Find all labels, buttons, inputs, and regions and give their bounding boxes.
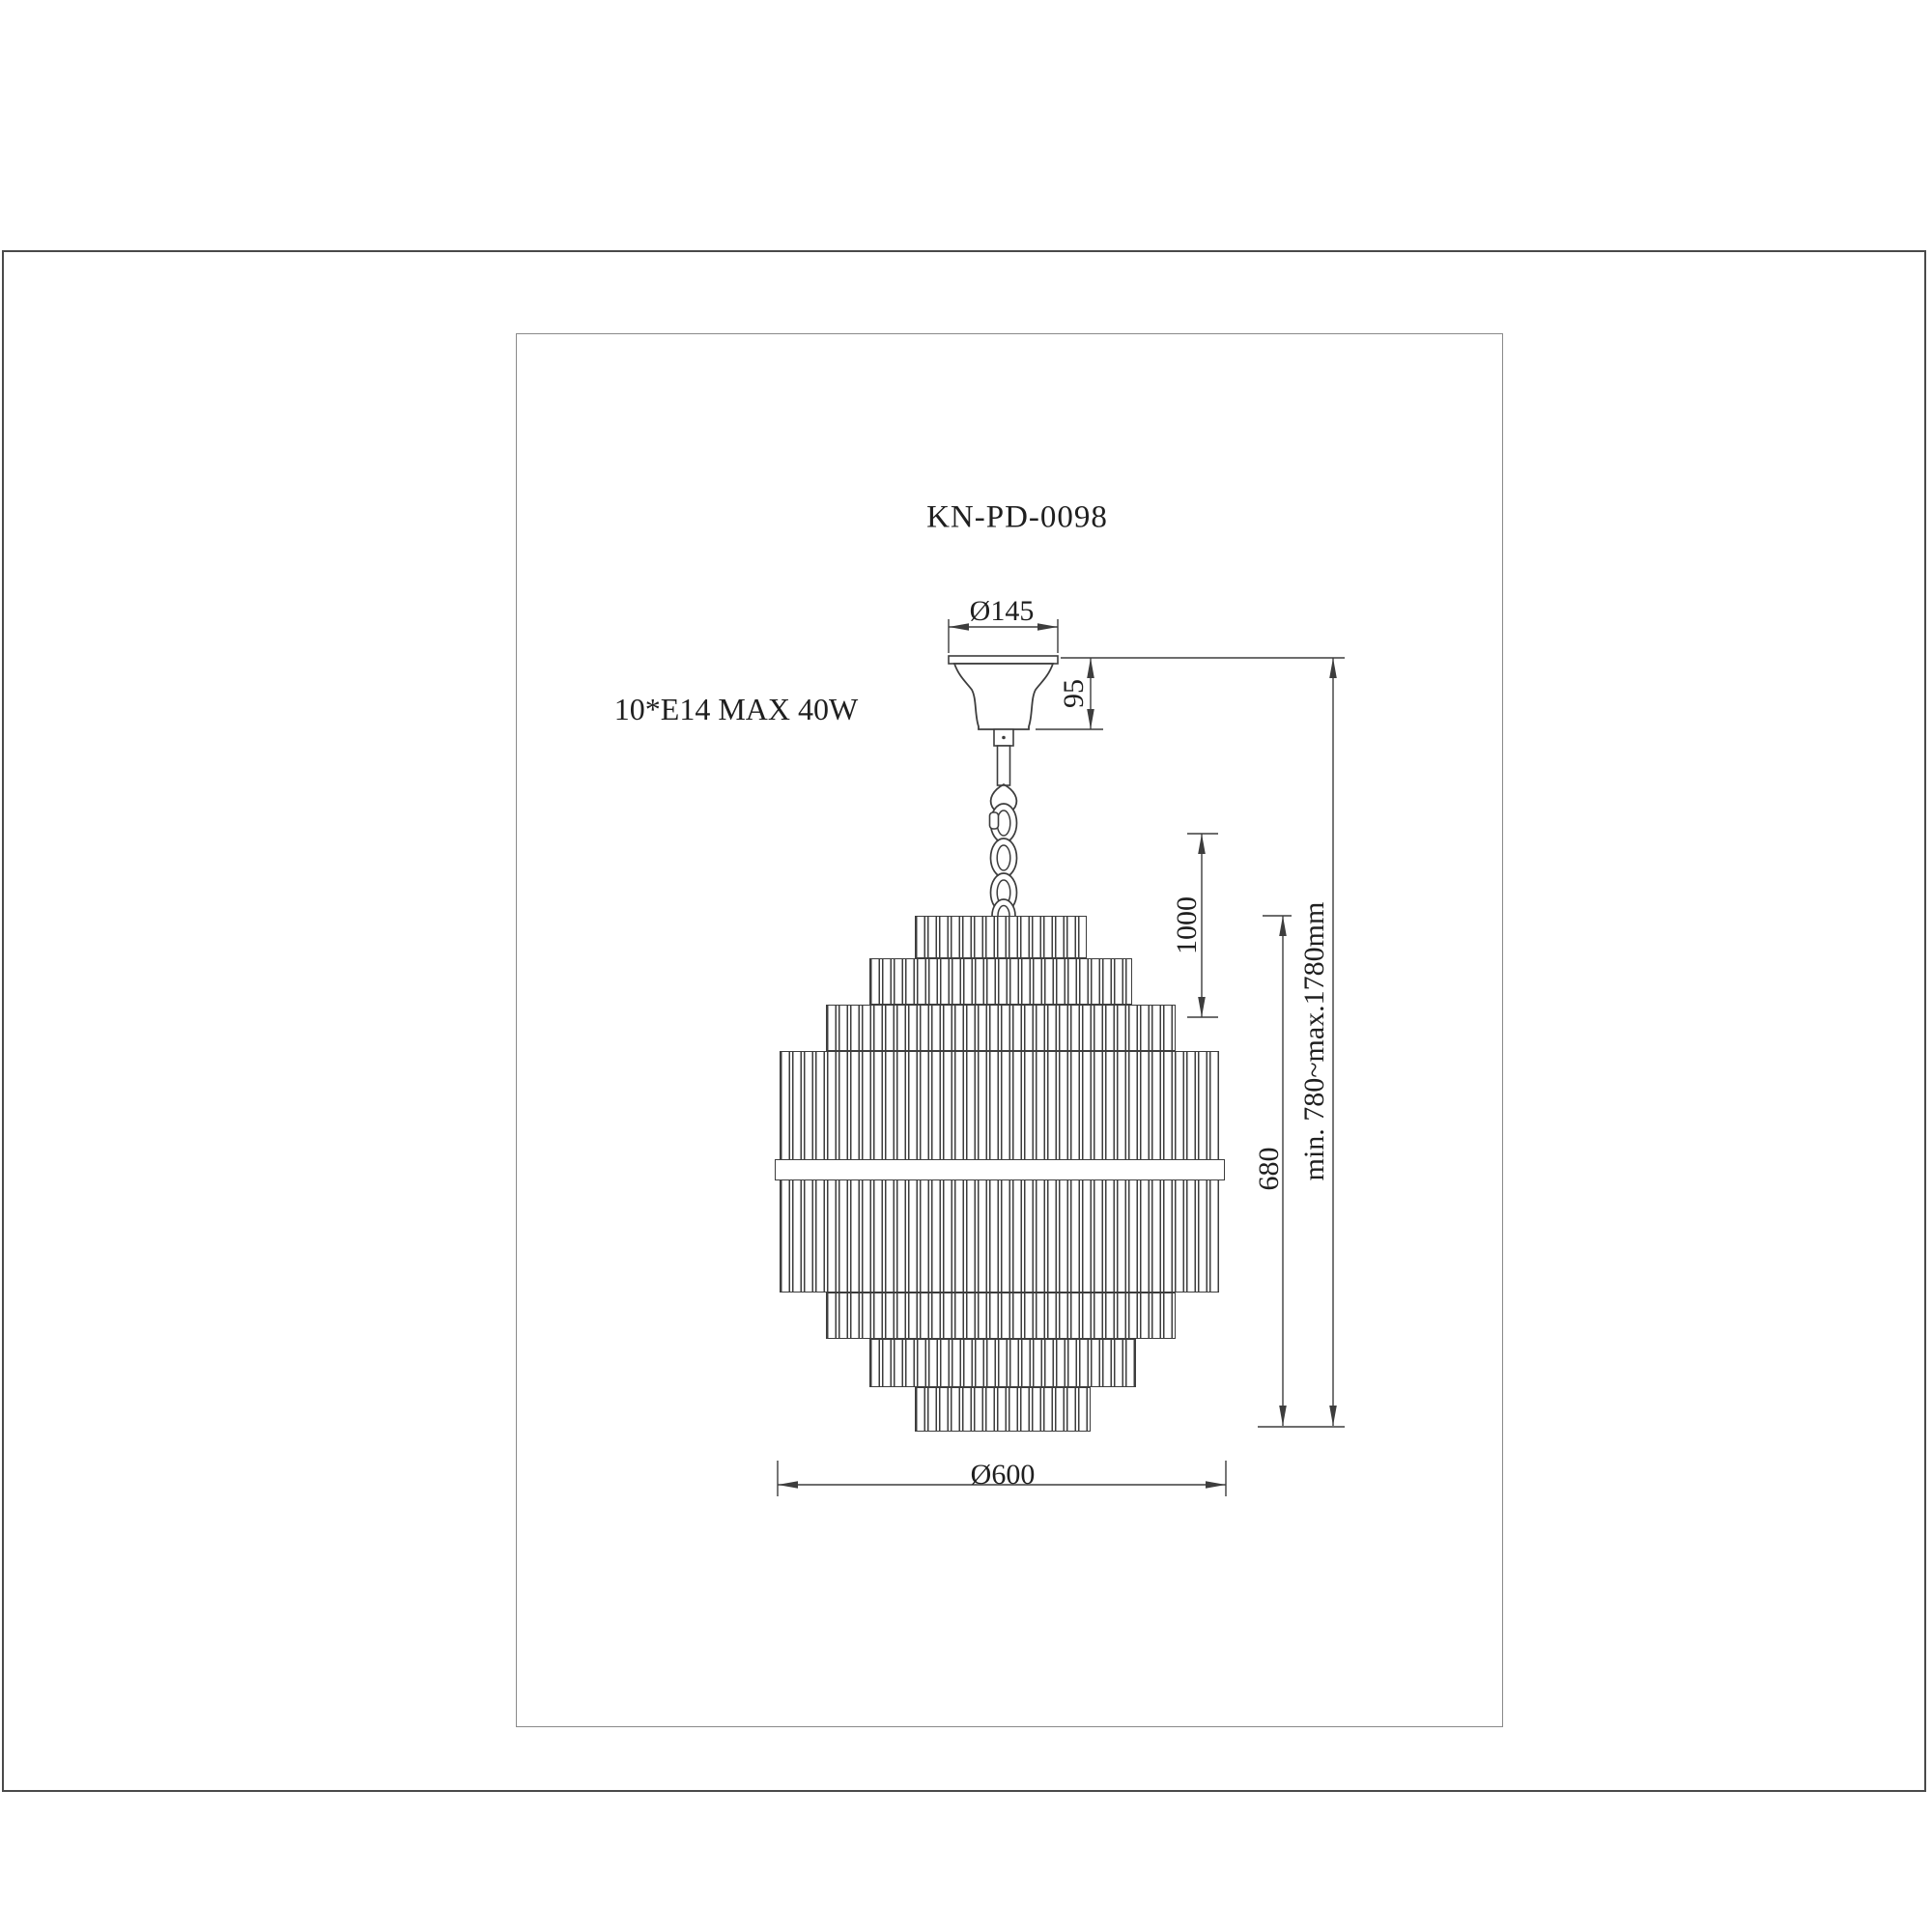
dimension-lines	[0, 0, 1932, 1932]
model-number: KN-PD-0098	[926, 502, 1108, 534]
bulb-spec: 10*E14 MAX 40W	[614, 694, 858, 724]
dim-label-body-diameter: Ø600	[971, 1461, 1036, 1490]
dim-label-canopy-height: 95	[1060, 679, 1089, 708]
dim-label-body-height: 680	[1255, 1148, 1284, 1191]
dim-label-suspension-length: 1000	[1173, 896, 1202, 954]
dim-label-canopy-diameter: Ø145	[970, 597, 1035, 626]
technical-drawing-sheet: KN-PD-0098 10*E14 MAX 40W Ø145 95 1000 6…	[0, 0, 1932, 1932]
dim-label-overall-height: min. 780~max.1780mm	[1300, 902, 1329, 1181]
